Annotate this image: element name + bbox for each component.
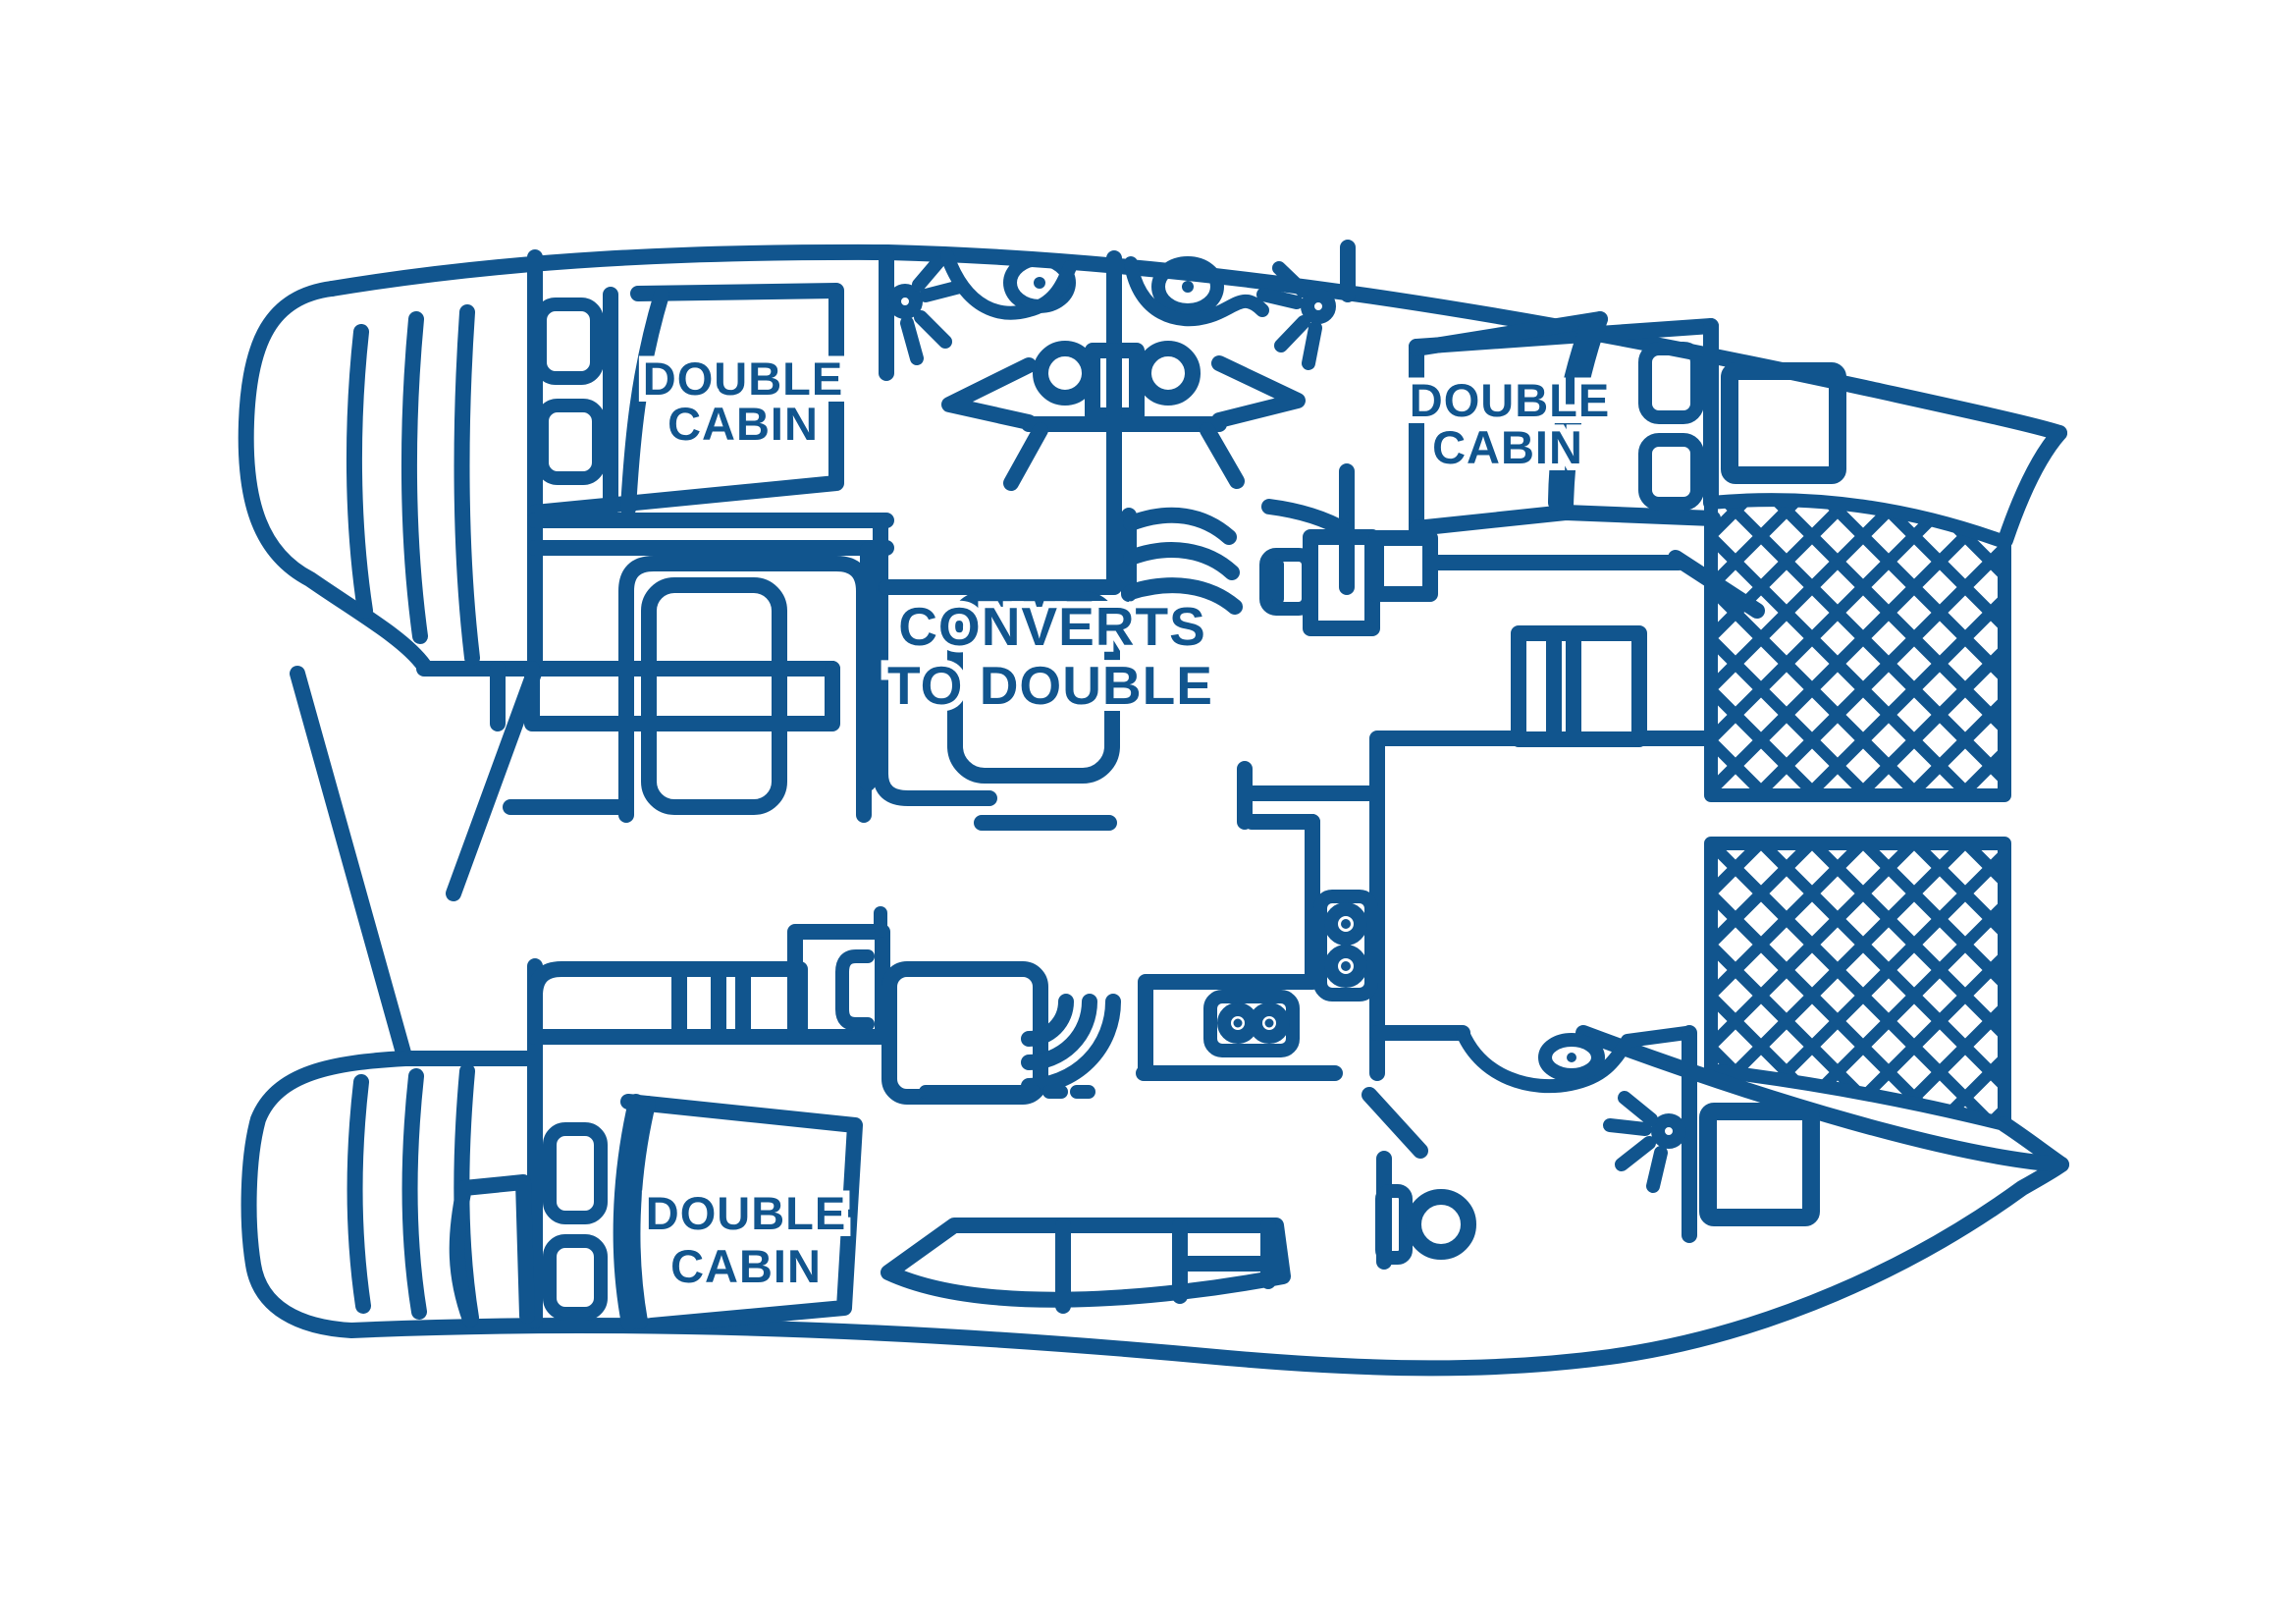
ceiling-lamp-icon: [1610, 1098, 1680, 1186]
stern-step-arc: [354, 332, 365, 611]
stern-step-arc: [409, 319, 420, 636]
trampoline-net-top: [1711, 500, 2004, 795]
floorplan-canvas: DOUBLE CABIN: [0, 0, 2296, 1624]
stern-step-arc: [410, 1076, 419, 1312]
cabin-bottom-aft: DOUBLE CABIN: [457, 913, 1113, 1326]
hull-window: [550, 1241, 601, 1314]
door-jamb: [1369, 1095, 1420, 1151]
hull-top-bow-inner-edge: [2005, 433, 2059, 540]
cabin-label-line2: CABIN: [670, 1240, 822, 1292]
salon-walls: [1377, 738, 1708, 1073]
bed-fold: [621, 1102, 648, 1324]
companionway-steps-top: [1129, 515, 1235, 607]
trampolines: [1711, 500, 2004, 1124]
cabin-label-line1: DOUBLE: [1410, 374, 1610, 426]
corridor-wall: [535, 520, 886, 548]
deck-hatch: [1730, 371, 1838, 475]
salon-label-line2: TO DOUBLE: [887, 655, 1213, 716]
room-forward-starboard: [1144, 537, 1757, 1073]
u-seat-cushion: [649, 585, 779, 807]
closet-dividers: [1554, 633, 1574, 739]
seat-c-shape: [842, 956, 868, 1024]
double-sink-icon: [1210, 997, 1293, 1051]
deck-hatch: [1708, 1111, 1811, 1218]
cabin-label-line2: CABIN: [667, 398, 819, 450]
stern-step-arc: [462, 312, 472, 658]
locker: [1376, 538, 1430, 594]
hull-window: [540, 304, 597, 378]
galley-counter-block: [889, 969, 1041, 1097]
hull-window: [550, 1129, 601, 1218]
vanity-leg: [1011, 430, 1237, 483]
stern-step-arc: [354, 1082, 363, 1306]
toilet-icon: [1382, 1191, 1468, 1258]
trampoline-net-bottom: [1711, 843, 2004, 1124]
hull-window: [542, 406, 599, 478]
bench-bottom: [888, 1225, 1283, 1306]
aft-deck-diagonal: [297, 674, 404, 1056]
headboard-band: [535, 969, 800, 1037]
hull-top-stern: [246, 289, 424, 666]
cabin-top-aft: DOUBLE CABIN: [498, 257, 843, 724]
hull-window: [1645, 440, 1697, 504]
cabin-label-line2: CABIN: [1432, 421, 1583, 473]
cabin-label-line1: DOUBLE: [646, 1187, 846, 1239]
double-basin-vanity: [949, 349, 1298, 483]
corridor-top: [535, 520, 886, 548]
catamaran-floorplan: DOUBLE CABIN: [0, 0, 2296, 1624]
salon-label-line1: CONVERTS: [898, 596, 1206, 657]
stove-icon: [1320, 896, 1371, 995]
door-arc: [1269, 507, 1347, 531]
bathroom-top-center: [886, 247, 1348, 587]
